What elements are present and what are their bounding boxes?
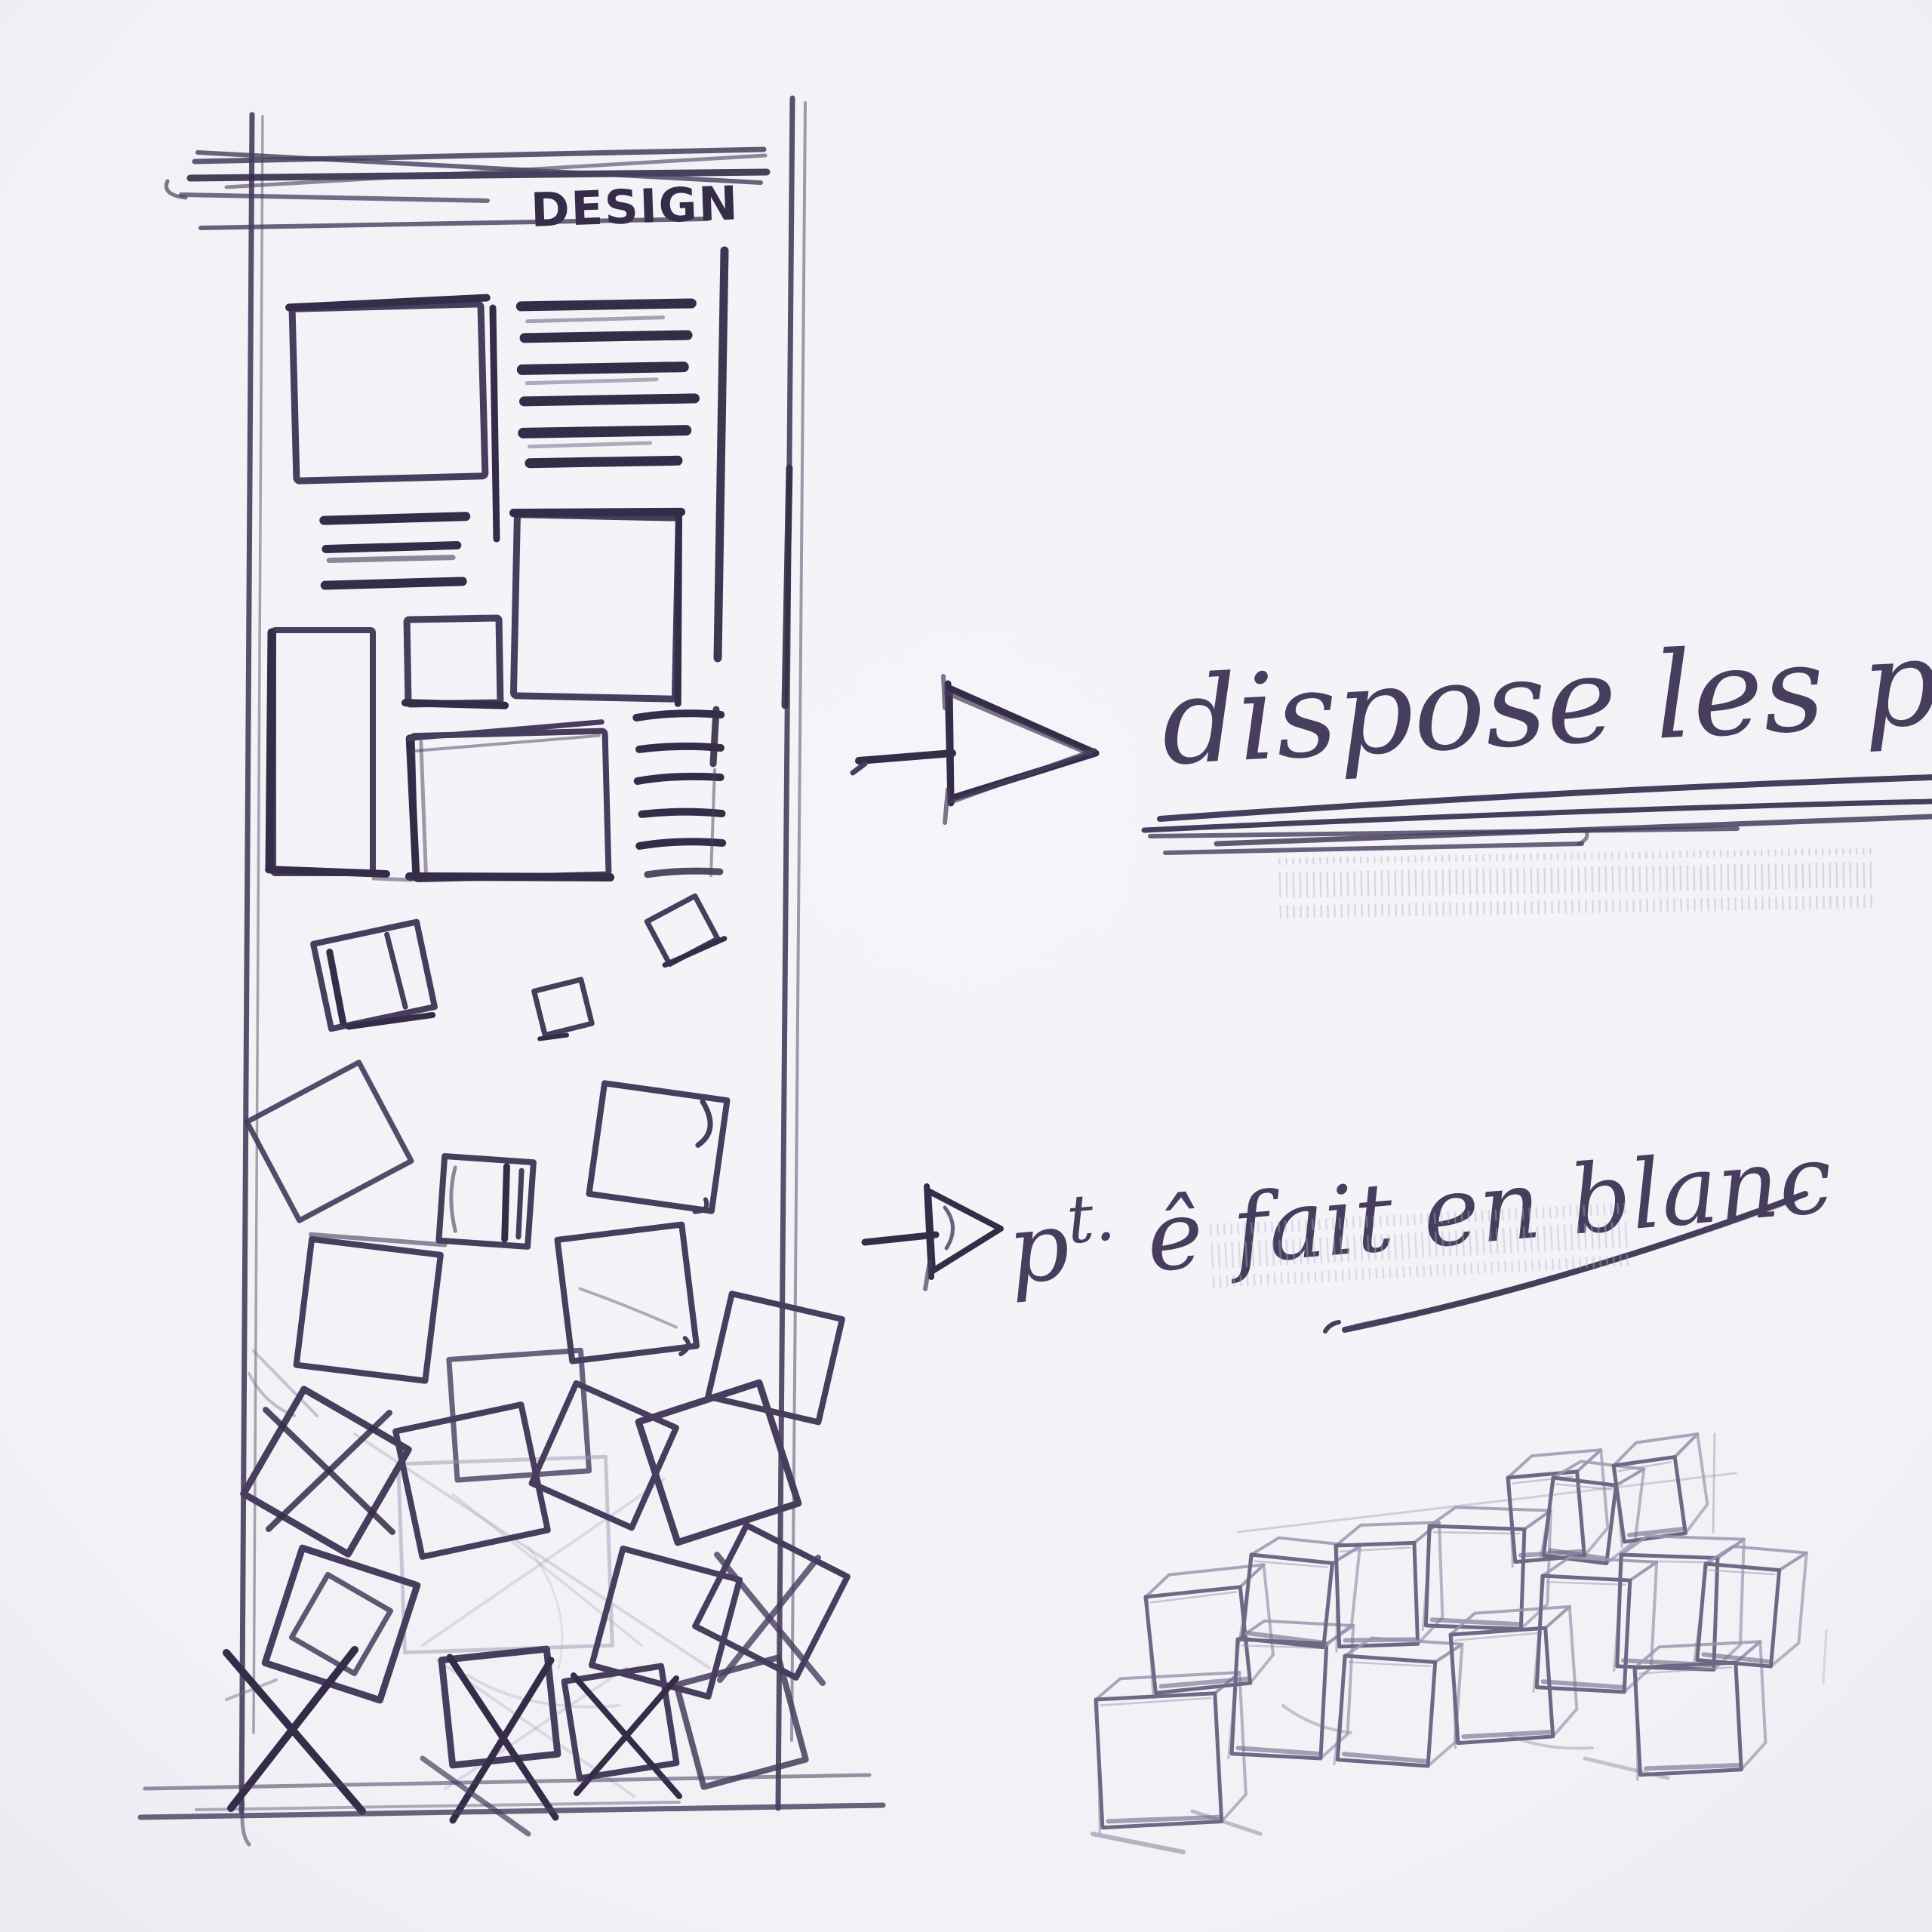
note-p: p [1004, 1189, 1074, 1305]
note-t-superscript: t. [1063, 1177, 1118, 1259]
show-through-ghost-text [1278, 848, 1875, 918]
sketch-page: DESIGN [0, 0, 1932, 1932]
sketch-canvas: DESIGN [0, 0, 1932, 1932]
paper-background [0, 0, 1932, 1932]
column-divider-line [493, 308, 497, 539]
poster-title: DESIGN [530, 175, 740, 238]
heavy-rule-line [713, 709, 716, 764]
